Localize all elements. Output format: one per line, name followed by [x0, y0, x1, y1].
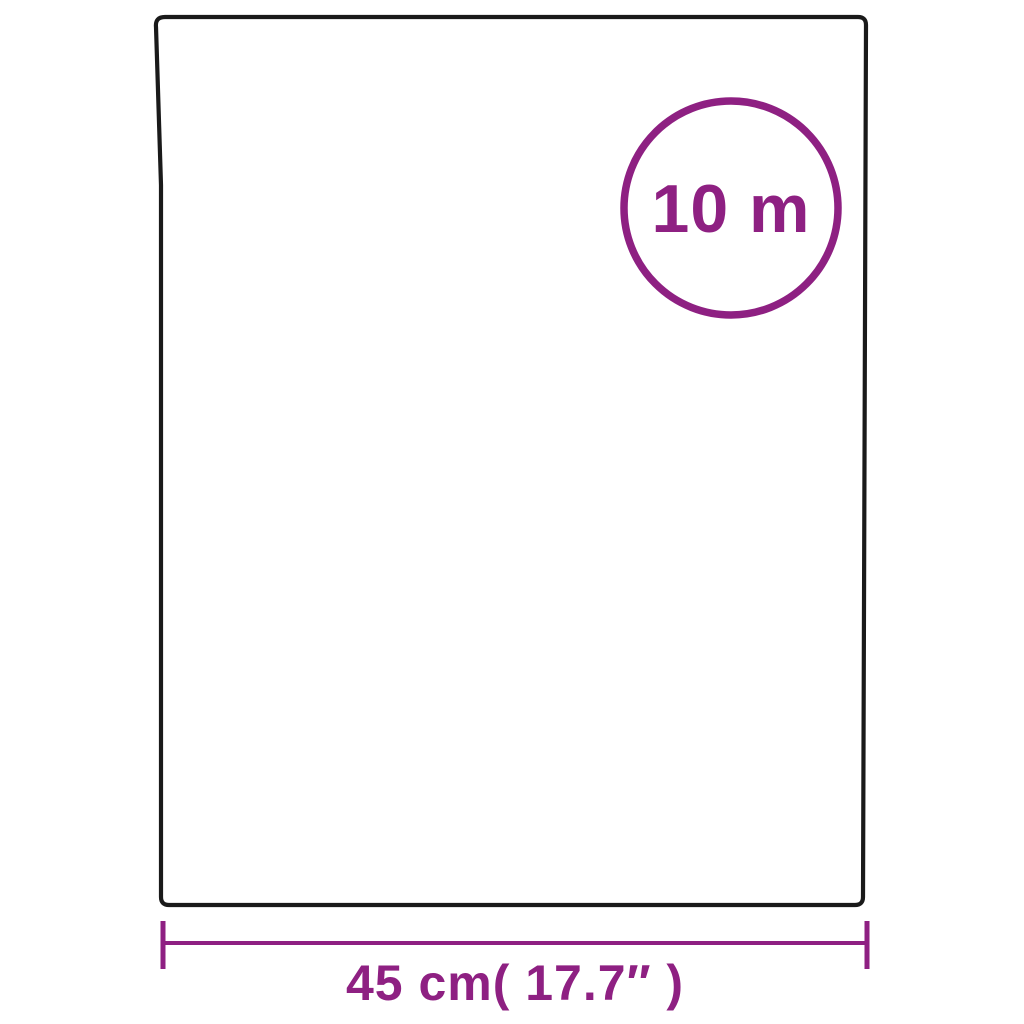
width-dimension-label: 45 cm( 17.7″ )	[346, 955, 684, 1011]
product-dimension-diagram: 10 m 45 cm( 17.7″ )	[0, 0, 1024, 1024]
length-badge-label: 10 m	[652, 171, 811, 247]
diagram-canvas: 10 m 45 cm( 17.7″ )	[0, 0, 1024, 1024]
